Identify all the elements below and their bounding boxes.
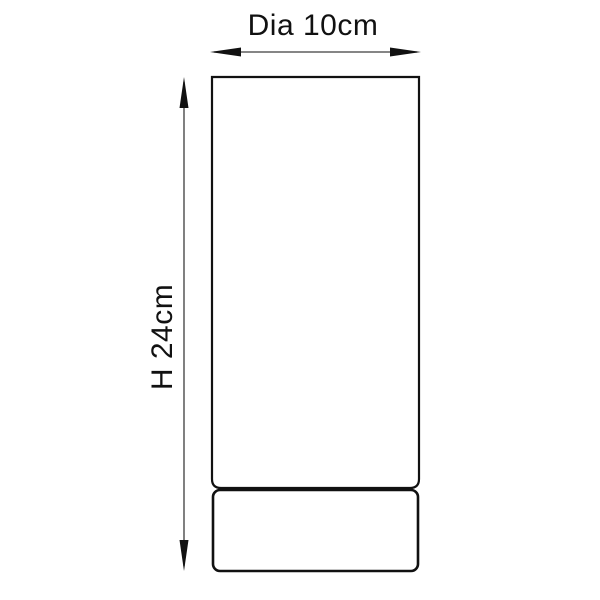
arrowhead-left (210, 48, 241, 57)
height-dimension-label: H 24cm (148, 284, 178, 390)
arrowhead-top (180, 77, 189, 108)
dimension-diagram: Dia 10cm H 24cm (0, 0, 600, 600)
arrowhead-right (390, 48, 421, 57)
width-dimension-arrow (210, 48, 421, 57)
cylinder-body (212, 77, 419, 488)
cylinder-base (213, 490, 418, 571)
diameter-dimension-label: Dia 10cm (248, 11, 379, 41)
height-dimension-arrow (180, 77, 189, 571)
arrowhead-bottom (180, 540, 189, 571)
product-outline-drawing (0, 0, 600, 600)
